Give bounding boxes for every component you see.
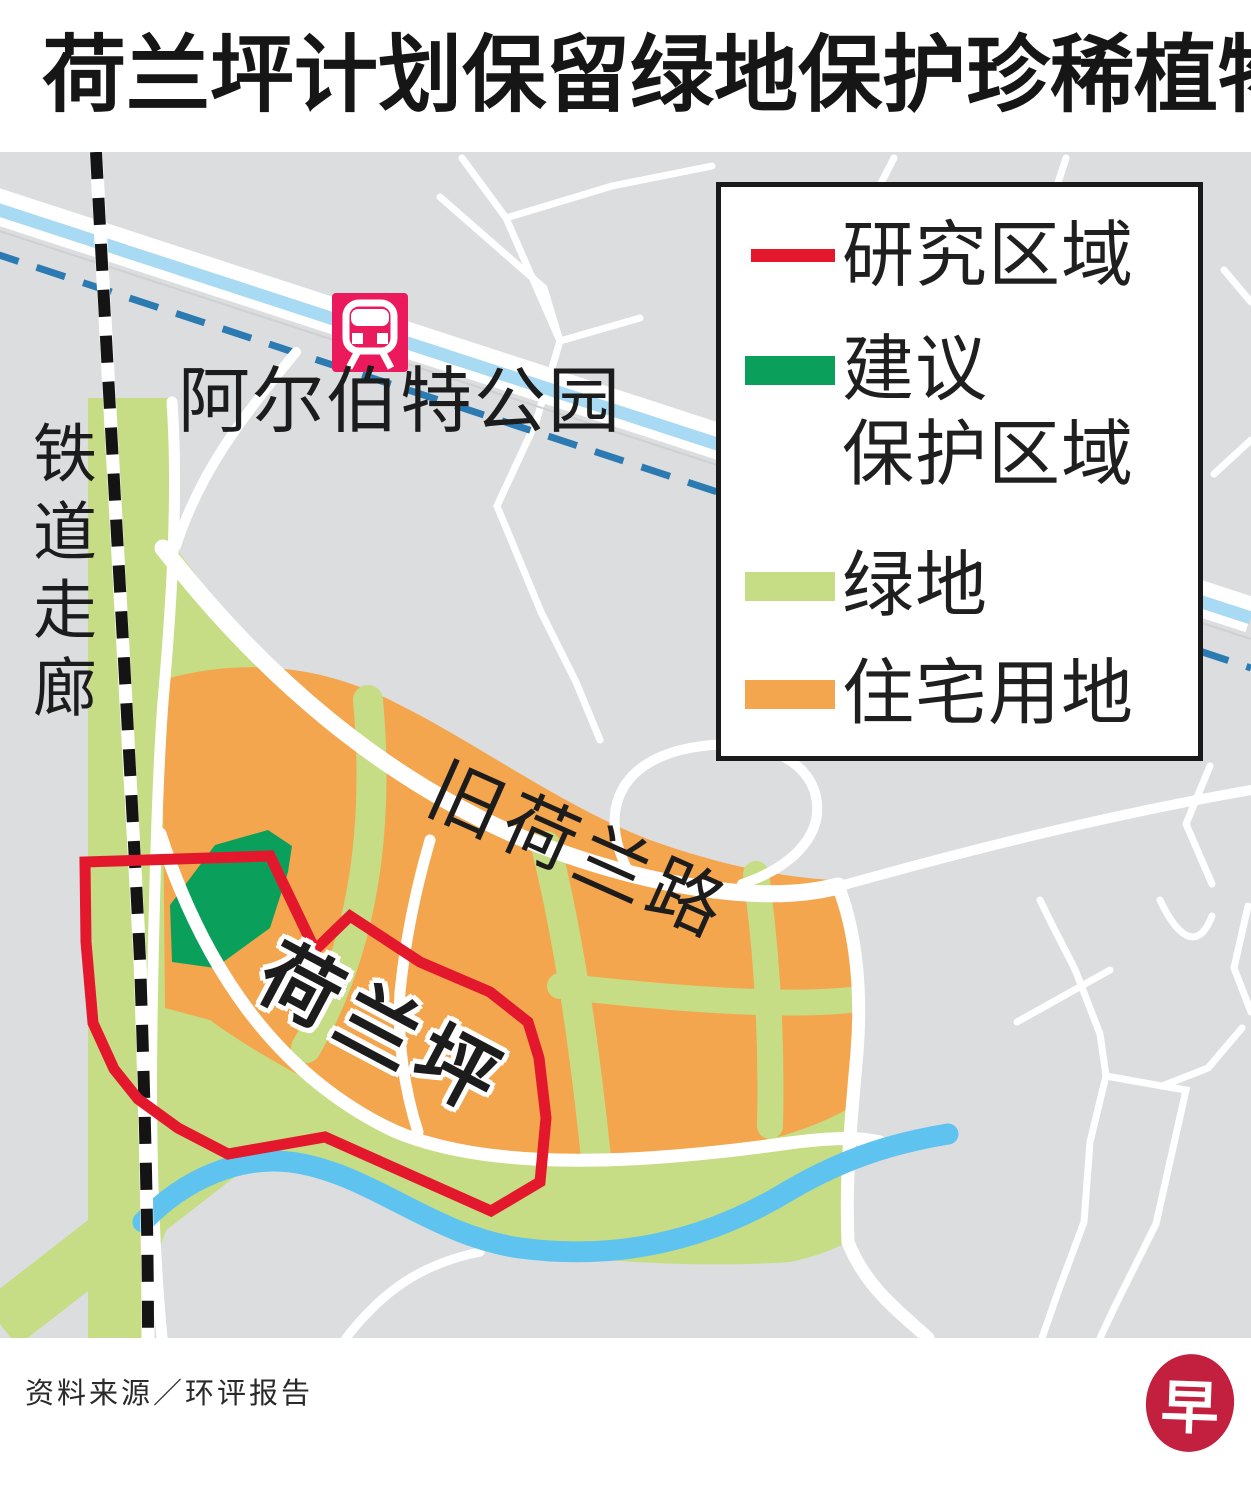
legend-label-green-space: 绿地 [842,550,988,622]
legend-label-protected-line2: 保护区域 [842,419,1134,491]
source-note: 资料来源／环评报告 [25,1370,313,1412]
study-area-line-swatch [751,249,835,262]
label-albert-park: 阿尔伯特公园 [178,366,622,438]
zaobao-logo-character: 早 [1160,1360,1221,1446]
page-title: 荷兰坪计划保留绿地保护珍稀植物 [42,26,1222,125]
legend-label-protected-line1: 建议 [842,334,988,406]
legend-label-residential: 住宅用地 [842,658,1134,730]
residential-swatch [745,680,835,709]
mrt-station-icon [332,293,408,372]
zaobao-logo: 早 [1140,1348,1241,1457]
legend: 研究区域 建议 保护区域 绿地 住宅用地 [716,182,1203,761]
label-rail-corridor: 铁道走廊 [28,420,92,732]
green-space-swatch [745,572,835,601]
legend-label-study-area: 研究区域 [842,220,1134,292]
protected-area-swatch [745,356,835,385]
